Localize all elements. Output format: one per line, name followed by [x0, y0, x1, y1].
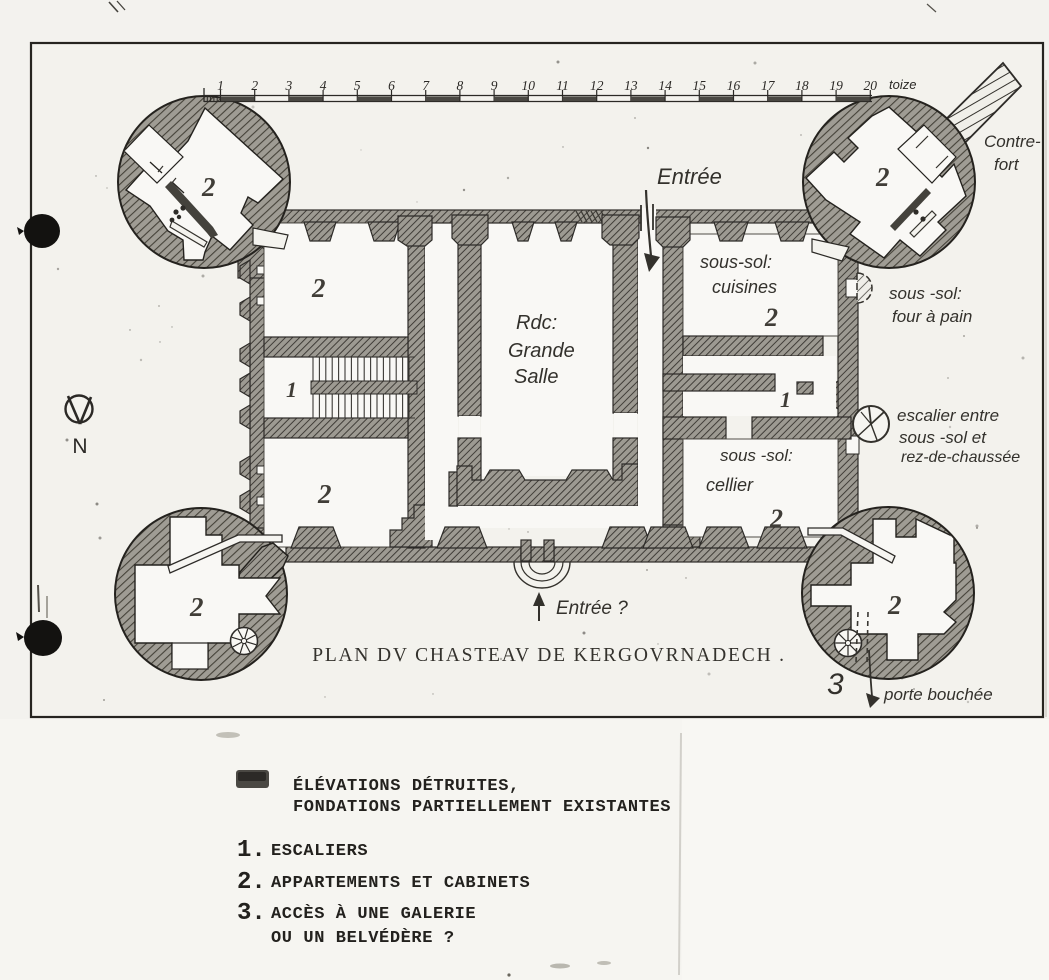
svg-text:sous -sol:: sous -sol: [720, 446, 793, 465]
svg-text:6: 6 [388, 78, 395, 93]
svg-text:3: 3 [285, 78, 293, 93]
svg-text:rez-de-chaussée: rez-de-chaussée [901, 449, 1020, 466]
svg-text:sous-sol:: sous-sol: [700, 252, 772, 272]
svg-text:18: 18 [795, 78, 809, 93]
svg-text:1.: 1. [237, 837, 266, 864]
svg-text:fort: fort [994, 155, 1020, 174]
svg-text:Entrée: Entrée [657, 164, 722, 189]
svg-text:17: 17 [761, 78, 776, 93]
svg-text:PLAN DV CHASTEAV DE KERGOVRNAD: PLAN DV CHASTEAV DE KERGOVRNADECH . [312, 645, 786, 666]
svg-text:2: 2 [189, 592, 204, 622]
svg-text:four à pain: four à pain [892, 307, 972, 326]
svg-text:cellier: cellier [706, 475, 754, 495]
svg-text:toize: toize [889, 77, 916, 92]
svg-text:20: 20 [864, 78, 878, 93]
svg-text:12: 12 [590, 78, 604, 93]
svg-text:1: 1 [217, 78, 224, 93]
svg-text:13: 13 [624, 78, 638, 93]
svg-text:2: 2 [764, 303, 778, 332]
svg-text:3: 3 [827, 668, 844, 701]
svg-text:N: N [72, 435, 87, 458]
svg-text:ACCÈS À UNE GALERIE: ACCÈS À UNE GALERIE [271, 904, 476, 924]
svg-text:Rdc:: Rdc: [516, 312, 557, 334]
svg-text:2: 2 [311, 273, 326, 303]
svg-text:sous -sol:: sous -sol: [889, 284, 962, 303]
svg-text:2: 2 [887, 590, 902, 620]
svg-text:9: 9 [491, 78, 498, 93]
svg-text:11: 11 [556, 78, 569, 93]
svg-text:ÉLÉVATIONS DÉTRUITES,: ÉLÉVATIONS DÉTRUITES, [293, 776, 520, 796]
svg-text:escalier entre: escalier entre [897, 406, 999, 425]
svg-text:8: 8 [457, 78, 464, 93]
svg-text:2: 2 [201, 172, 216, 202]
svg-text:2: 2 [251, 78, 258, 93]
svg-text:Salle: Salle [514, 366, 558, 388]
svg-text:ESCALIERS: ESCALIERS [271, 842, 368, 861]
svg-text:sous -sol et: sous -sol et [899, 428, 987, 447]
svg-text:FONDATIONS PARTIELLEMENT EXIST: FONDATIONS PARTIELLEMENT EXISTANTES [293, 798, 671, 817]
svg-text:1: 1 [286, 377, 297, 402]
svg-text:2: 2 [317, 479, 332, 509]
svg-text:3.: 3. [237, 900, 266, 927]
svg-text:APPARTEMENTS ET CABINETS: APPARTEMENTS ET CABINETS [271, 874, 530, 893]
svg-text:4: 4 [320, 78, 327, 93]
svg-text:10: 10 [522, 78, 536, 93]
svg-text:cuisines: cuisines [712, 277, 777, 297]
svg-text:5: 5 [354, 78, 361, 93]
svg-text:Grande: Grande [508, 340, 575, 362]
svg-text:2.: 2. [237, 869, 266, 896]
svg-text:OU UN BELVÉDÈRE ?: OU UN BELVÉDÈRE ? [271, 928, 455, 948]
svg-text:Contre-: Contre- [984, 132, 1041, 151]
svg-text:19: 19 [829, 78, 843, 93]
svg-text:Entrée ?: Entrée ? [556, 598, 628, 619]
svg-text:16: 16 [727, 78, 741, 93]
svg-text:14: 14 [658, 78, 672, 93]
svg-text:15: 15 [693, 78, 707, 93]
svg-text:2: 2 [769, 504, 783, 533]
svg-text:2: 2 [875, 162, 890, 192]
svg-text:porte bouchée: porte bouchée [883, 685, 993, 704]
svg-text:1: 1 [780, 387, 791, 412]
